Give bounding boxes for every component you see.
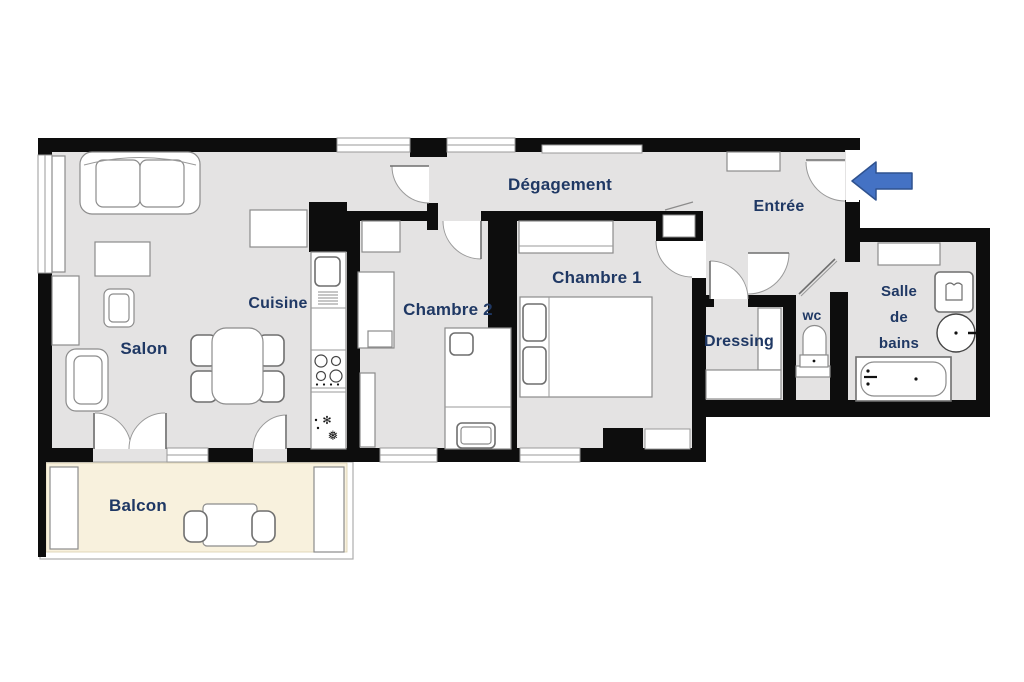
floor-plan: ✻ ❅ xyxy=(0,0,1024,682)
balcony-chair-left xyxy=(184,511,207,542)
wall-bottom-band xyxy=(692,400,990,417)
bed-end-table xyxy=(457,423,495,448)
pillow xyxy=(523,304,546,341)
svg-text:de: de xyxy=(890,309,908,326)
label-salon: Salon xyxy=(120,339,167,358)
wall-segment xyxy=(38,138,337,152)
wall-bath-right xyxy=(976,228,990,417)
wardrobe-chambre1 xyxy=(519,221,613,253)
label-cuisine: Cuisine xyxy=(248,295,307,312)
wall-segment xyxy=(352,211,427,221)
tall-cabinet xyxy=(360,373,375,447)
wall-wc-right xyxy=(830,292,848,402)
planter-right xyxy=(314,467,344,552)
label-degagement: Dégagement xyxy=(508,175,612,194)
bathtub xyxy=(856,357,951,401)
window-sill-chambre1 xyxy=(645,429,690,449)
outside-bottom-right xyxy=(706,417,1024,487)
wall-segment xyxy=(410,138,447,157)
kitchen-counter xyxy=(250,210,307,247)
wall-pillar-kitchen xyxy=(309,202,347,252)
fridge-snowflake-icon: ❅ xyxy=(328,429,339,444)
wall-segment xyxy=(692,278,706,462)
wall-stub xyxy=(427,203,438,230)
window xyxy=(520,448,580,462)
svg-text:bains: bains xyxy=(879,335,919,352)
console-cabinet xyxy=(52,276,79,345)
wardrobe xyxy=(362,221,400,252)
doorway-chambre1 xyxy=(692,241,706,278)
label-chambre1: Chambre 1 xyxy=(552,268,642,287)
window xyxy=(38,155,52,273)
svg-text:Salle: Salle xyxy=(881,283,917,300)
wall-segment xyxy=(208,448,253,462)
desk-unit xyxy=(358,272,394,348)
bed-chambre2 xyxy=(445,328,511,449)
wc-shelf xyxy=(796,366,830,377)
planter-left xyxy=(50,467,78,549)
armchair xyxy=(66,349,108,411)
bed-chambre1 xyxy=(520,297,652,397)
toilet xyxy=(800,326,828,368)
sofa xyxy=(80,152,200,214)
window xyxy=(447,138,515,152)
fridge-snowflake-icon: ✻ xyxy=(322,414,331,427)
entrance-opening xyxy=(846,150,859,202)
floor-plan-page: ✻ ❅ xyxy=(0,0,1024,682)
wall-wc-left xyxy=(783,295,796,402)
wall-segment xyxy=(287,448,380,462)
side-table xyxy=(104,289,134,327)
label-entree: Entrée xyxy=(754,198,805,215)
wall-segment xyxy=(845,138,860,150)
label-wc: wc xyxy=(801,307,821,323)
wall-segment xyxy=(748,295,783,307)
balcony xyxy=(40,462,353,559)
niche-shelf xyxy=(663,215,695,237)
coffee-table xyxy=(95,242,150,276)
window-ledge xyxy=(52,156,65,272)
pillow xyxy=(450,333,473,355)
bath-shelf xyxy=(878,243,940,265)
balcony-chair-right xyxy=(252,511,275,542)
shelf xyxy=(706,370,781,399)
label-dressing: Dressing xyxy=(704,333,774,350)
entree-fixtures xyxy=(727,152,780,171)
window xyxy=(167,448,208,462)
wall-bath-top xyxy=(845,228,990,242)
label-chambre2: Chambre 2 xyxy=(403,300,493,319)
wall-pillar xyxy=(603,428,643,452)
window-hallway-strip xyxy=(542,145,642,153)
dining-table-set xyxy=(191,328,284,404)
entry-closet xyxy=(727,152,780,171)
wall-segment xyxy=(38,448,93,462)
pillow xyxy=(523,347,546,384)
bathroom-sink xyxy=(935,272,973,312)
window xyxy=(337,138,410,152)
window xyxy=(380,448,437,462)
wall-segment xyxy=(38,462,46,557)
balcony-table xyxy=(203,504,257,546)
label-balcon: Balcon xyxy=(109,496,167,515)
